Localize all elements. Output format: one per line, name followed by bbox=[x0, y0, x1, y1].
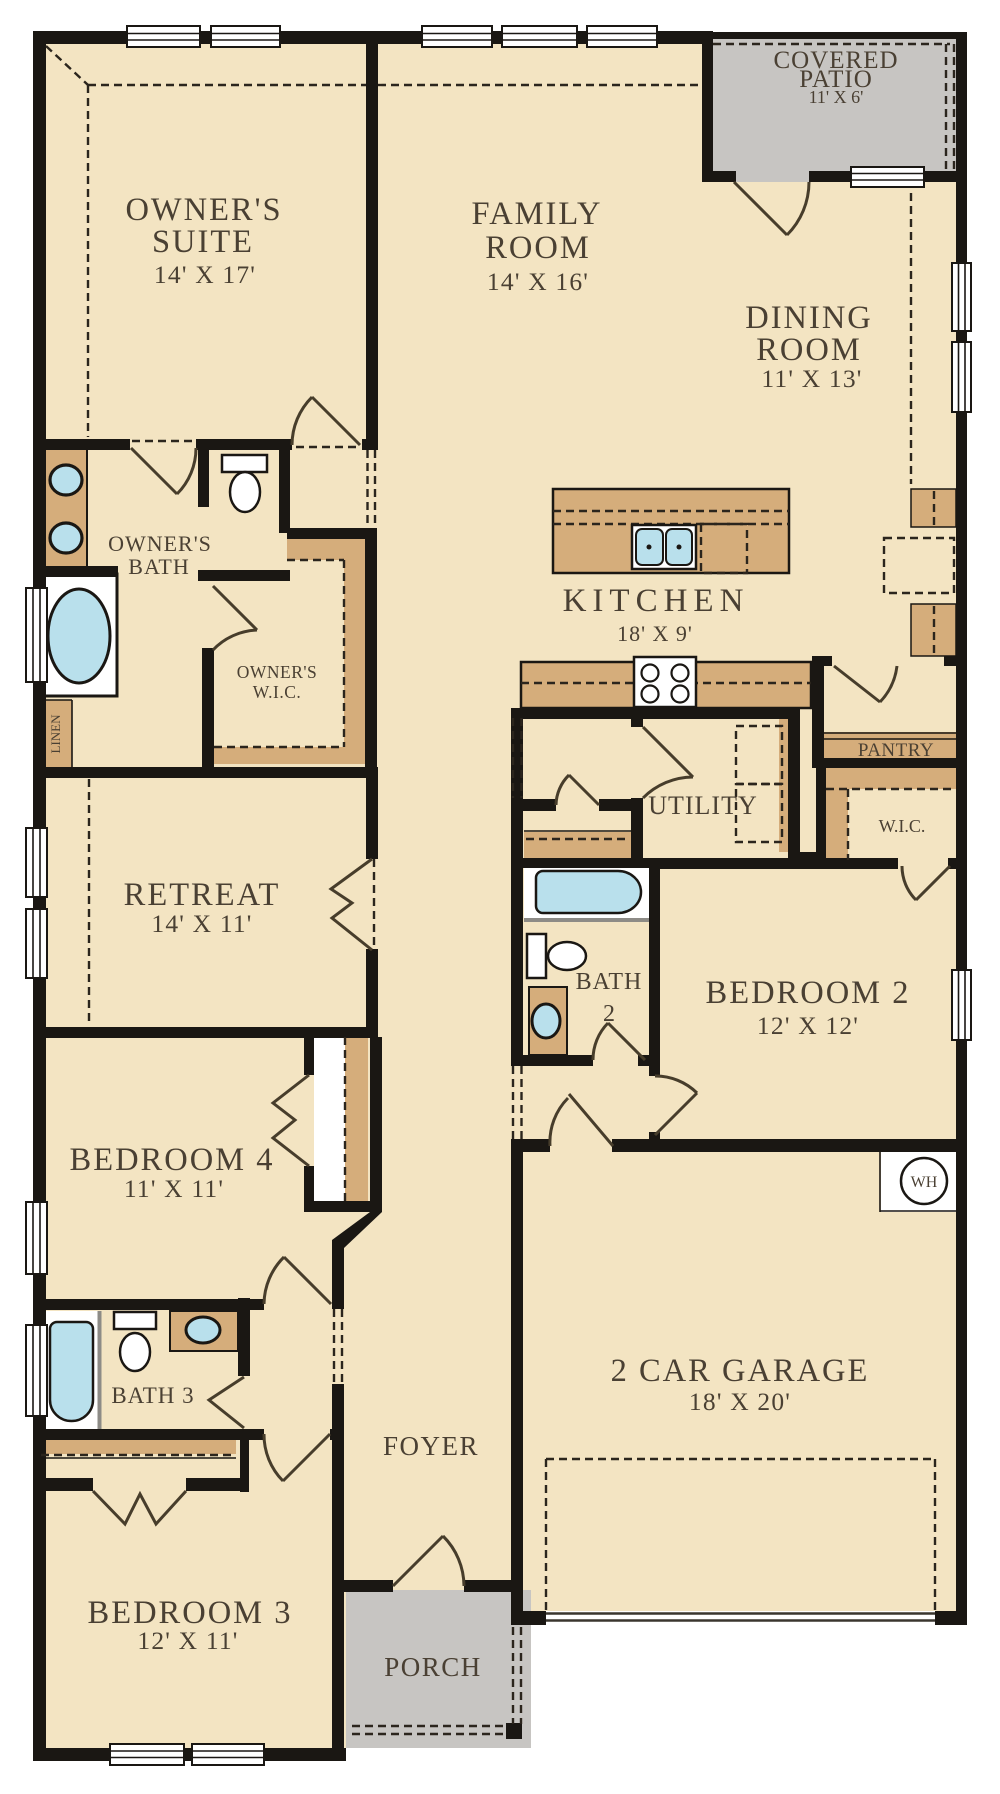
svg-text:OWNER'S: OWNER'S bbox=[108, 531, 212, 556]
svg-text:11' X 6': 11' X 6' bbox=[809, 87, 864, 107]
svg-text:14' X 17': 14' X 17' bbox=[154, 260, 256, 289]
svg-text:BEDROOM 2: BEDROOM 2 bbox=[706, 975, 911, 1011]
svg-text:LINEN: LINEN bbox=[48, 714, 63, 754]
svg-text:UTILITY: UTILITY bbox=[648, 791, 758, 820]
svg-text:2 CAR GARAGE: 2 CAR GARAGE bbox=[611, 1353, 870, 1389]
svg-text:12' X 11': 12' X 11' bbox=[137, 1626, 238, 1655]
svg-text:18' X 9': 18' X 9' bbox=[617, 621, 693, 646]
svg-text:PANTRY: PANTRY bbox=[858, 740, 934, 761]
svg-text:SUITE: SUITE bbox=[152, 224, 254, 260]
svg-text:BATH 3: BATH 3 bbox=[111, 1383, 194, 1408]
svg-text:12' X 12': 12' X 12' bbox=[757, 1011, 859, 1040]
svg-text:PORCH: PORCH bbox=[384, 1652, 482, 1682]
svg-text:14' X 11': 14' X 11' bbox=[151, 909, 252, 938]
svg-text:11' X 13': 11' X 13' bbox=[761, 364, 862, 393]
svg-text:ROOM: ROOM bbox=[485, 230, 591, 266]
svg-text:RETREAT: RETREAT bbox=[124, 877, 281, 913]
svg-text:OWNER'S: OWNER'S bbox=[125, 192, 282, 228]
svg-text:14' X 16': 14' X 16' bbox=[487, 267, 589, 296]
svg-text:11' X 11': 11' X 11' bbox=[124, 1174, 224, 1203]
svg-text:DINING: DINING bbox=[745, 300, 873, 336]
svg-text:FOYER: FOYER bbox=[383, 1431, 479, 1461]
svg-text:W.I.C.: W.I.C. bbox=[253, 682, 302, 702]
svg-text:OWNER'S: OWNER'S bbox=[237, 662, 318, 682]
svg-text:BATH: BATH bbox=[576, 969, 643, 995]
svg-text:W.I.C.: W.I.C. bbox=[879, 816, 926, 836]
svg-text:18' X 20': 18' X 20' bbox=[689, 1387, 791, 1416]
svg-text:ROOM: ROOM bbox=[756, 332, 862, 368]
svg-text:KITCHEN: KITCHEN bbox=[563, 583, 750, 619]
svg-text:2: 2 bbox=[603, 1001, 615, 1027]
svg-text:FAMILY: FAMILY bbox=[472, 196, 603, 232]
svg-text:BEDROOM 4: BEDROOM 4 bbox=[70, 1142, 275, 1178]
svg-text:WH: WH bbox=[911, 1174, 938, 1191]
svg-text:BATH: BATH bbox=[128, 554, 189, 579]
